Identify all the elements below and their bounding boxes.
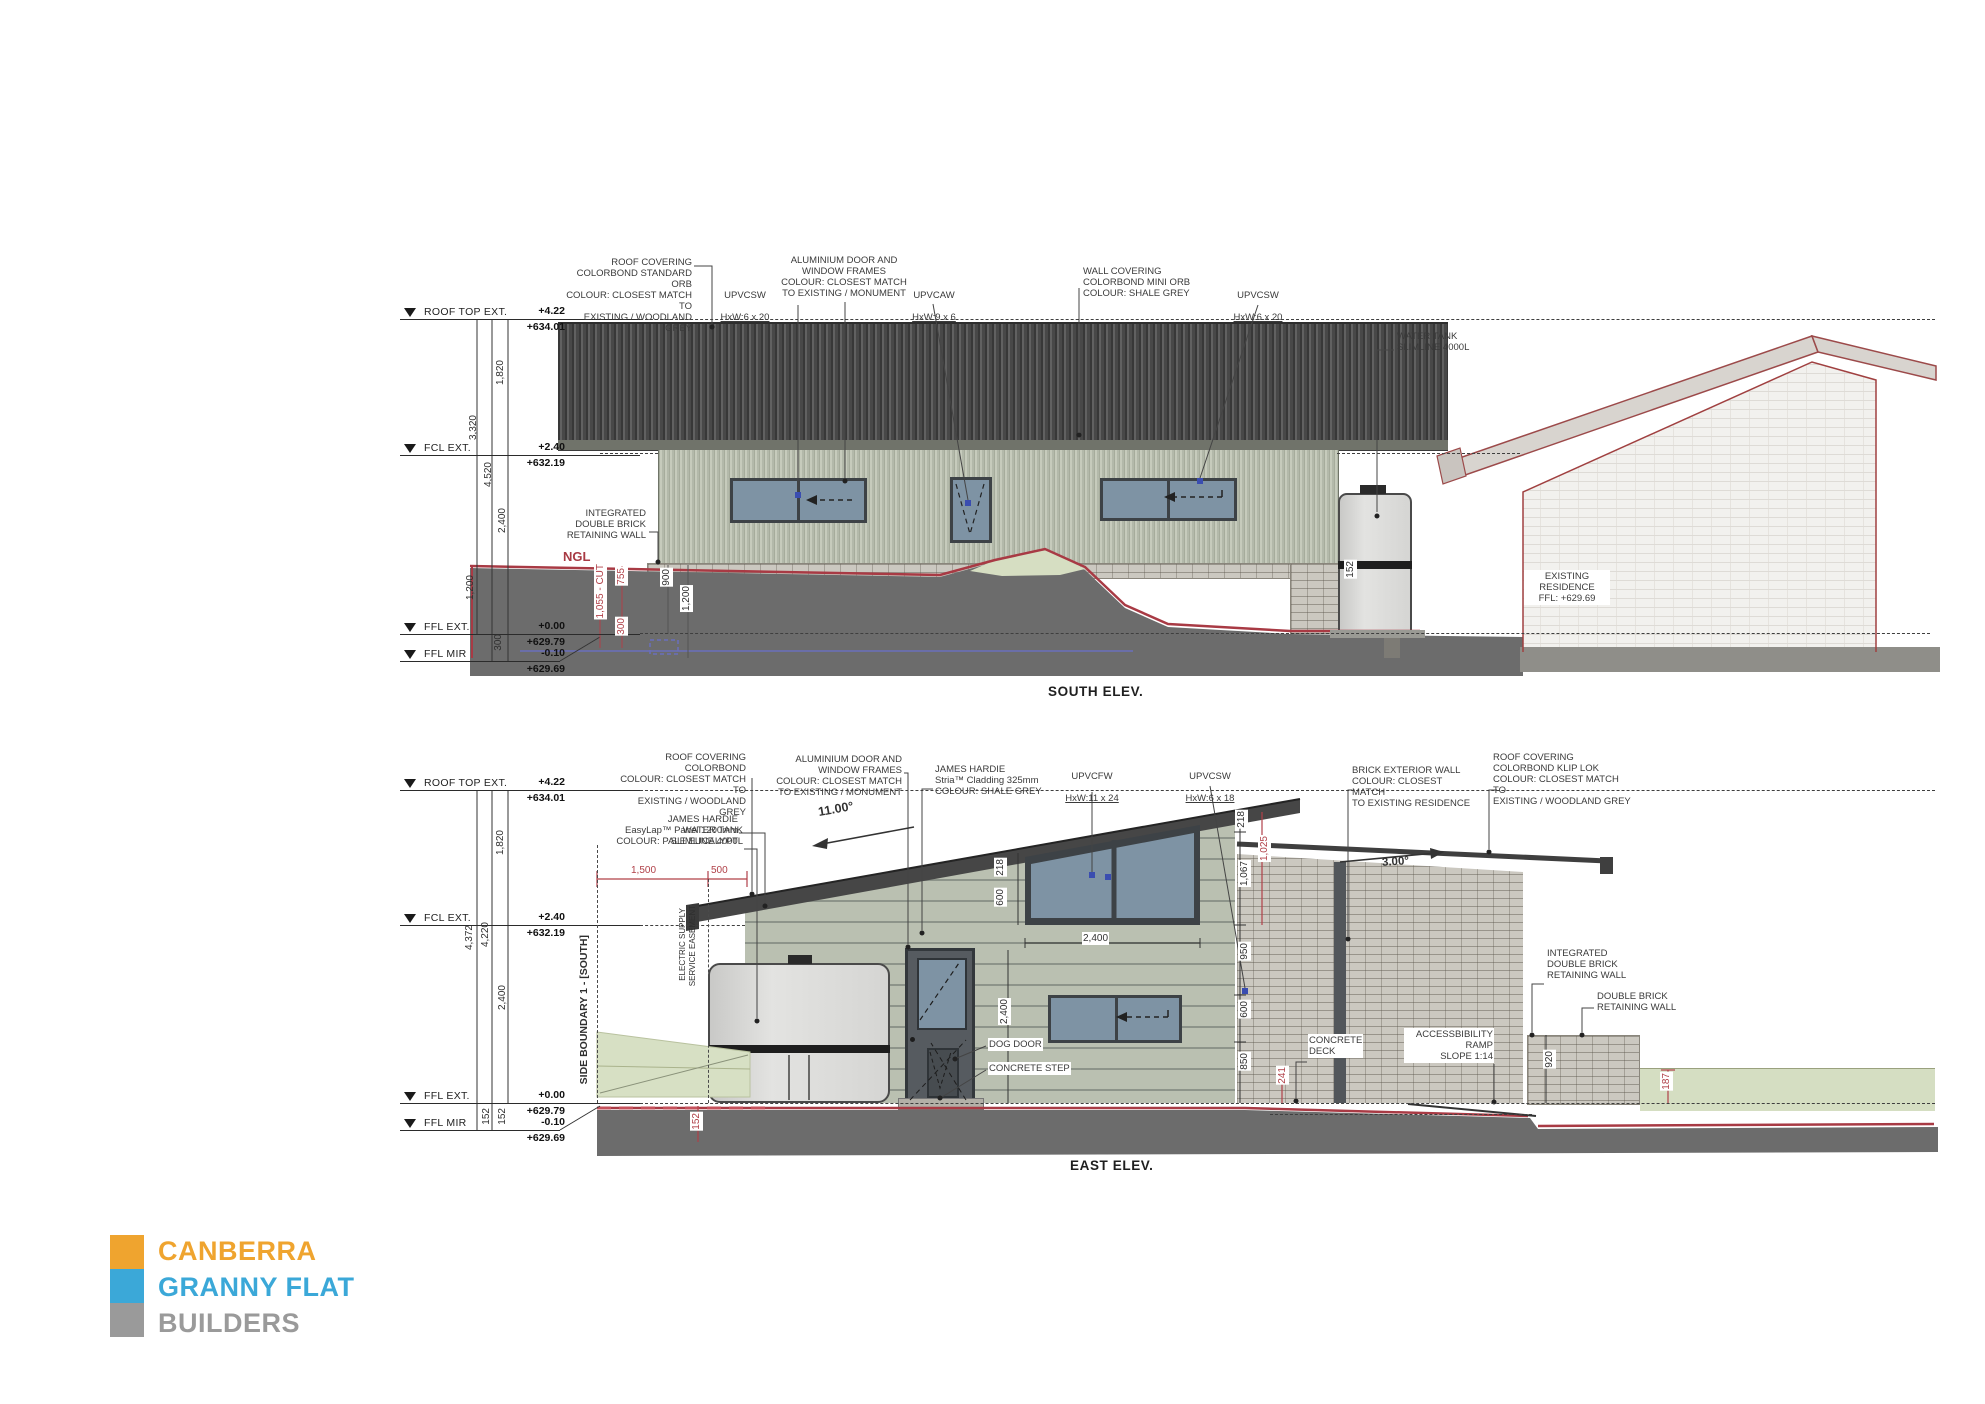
note-brick-wall-e: BRICK EXTERIOR WALL COLOUR: CLOSEST MATC… (1352, 765, 1476, 809)
dim-218-left-e: 218 (994, 858, 1007, 877)
dim-755-s: 755 (615, 567, 628, 586)
datum-label: FFL EXT. (424, 621, 470, 633)
concrete-step-label: CONCRETE STEP (988, 1062, 1071, 1075)
dim-1200b-s: 1,200 (680, 585, 693, 612)
note-klip-lok-e: ROOF COVERING COLORBOND KLIP LOK COLOUR:… (1493, 752, 1633, 807)
concrete-deck-label: CONCRETE DECK (1308, 1034, 1363, 1058)
dim-300b-s: 300 (615, 617, 628, 636)
logo-square-blue (110, 1269, 144, 1303)
architectural-drawing-sheet: ROOF TOP EXT. +4.22 +634.01 FCL EXT. +2.… (0, 0, 1985, 1404)
datum-abs-value: +629.69 (480, 1132, 565, 1144)
dashed-ffl-s (640, 633, 1930, 634)
dashed-fcl-s-left (600, 453, 658, 454)
note-upvcsw2-s: UPVCSW HxW:6 x 20 (1225, 279, 1291, 334)
dim-300-s: 300 (493, 634, 504, 651)
datum-marker (404, 1092, 416, 1101)
logo-square-gray (110, 1303, 144, 1337)
upvc-size: HxW:6 x 20 (1225, 312, 1291, 323)
east-entry-door (905, 948, 975, 1105)
dim-1820-e: 1,820 (495, 830, 506, 855)
datum-line-ffl-s (400, 634, 640, 635)
east-downpipe (1334, 862, 1346, 1103)
dim-1820-s: 1,820 (495, 360, 506, 385)
note-water-tank-s: WATER TANK SLIMLINE 4000L (1397, 331, 1492, 353)
upvc-code: UPVCSW (703, 290, 787, 301)
datum-line-fcl-s (400, 455, 640, 456)
dim-1500-e: 1,500 (630, 864, 657, 877)
window-mullion (797, 481, 800, 520)
dim-4220-e: 4,220 (480, 922, 491, 947)
note-retaining-wall-s: INTEGRATED DOUBLE BRICK RETAINING WALL (556, 508, 646, 541)
datum-line-mir-e (400, 1130, 560, 1131)
dim-152b-e: 152 (497, 1108, 508, 1125)
south-roof-band (558, 322, 1448, 446)
note-alu-frames-s: ALUMINIUM DOOR AND WINDOW FRAMES COLOUR:… (778, 255, 910, 299)
note-stria-e: JAMES HARDIE Stria™ Cladding 325mm COLOU… (935, 764, 1047, 797)
tank-cap (1360, 485, 1386, 494)
dim-4520-s: 4,520 (483, 462, 494, 487)
linework-overlay (0, 0, 1985, 1404)
datum-line-ffl-e (400, 1103, 640, 1104)
side-boundary-label: SIDE BOUNDARY 1 - [SOUTH] (578, 935, 590, 1084)
easement-label-1: ELECTRIC SUPPLY (678, 908, 687, 981)
note-wall-covering-s: WALL COVERING COLORBOND MINI ORB COLOUR:… (1083, 266, 1213, 299)
dim-500-e: 500 (710, 864, 729, 877)
dim-152-s: 152 (1344, 560, 1357, 579)
upvc-size: HxW:11 x 24 (1060, 793, 1124, 804)
side-boundary-line (597, 845, 598, 1103)
dim-241-e: 241 (1276, 1066, 1289, 1085)
dim-152-red-e: 152 (690, 1112, 703, 1131)
existing-residence-label: EXISTING RESIDENCE FFL: +629.69 (1524, 570, 1610, 605)
datum-abs-value: +629.69 (480, 663, 565, 675)
upvc-code: UPVCFW (1060, 771, 1124, 782)
ramp-label: ACCESSBIBILITY RAMP SLOPE 1:14 (1404, 1028, 1494, 1063)
upvc-size: HxW:6 x 20 (703, 312, 787, 323)
east-elevation-title: EAST ELEV. (1070, 1158, 1154, 1173)
dashed-ffl-e (640, 1103, 1935, 1104)
dim-900-s: 900 (660, 568, 673, 587)
south-window-3 (1100, 478, 1237, 521)
ngl-label: NGL (563, 549, 590, 564)
upvc-size: HxW:6 x 18 (1178, 793, 1242, 804)
note-upvcsw-e: UPVCSW HxW:6 x 18 (1178, 760, 1242, 815)
slope-3-label: 3.00° (1382, 855, 1410, 869)
dim-187-e: 187 (1660, 1072, 1673, 1091)
datum-marker (404, 623, 416, 632)
dim-600-right-e: 600 (1238, 1000, 1251, 1019)
south-window-1 (730, 478, 867, 523)
datum-label: FFL MIR (424, 648, 467, 660)
note-easylap-e: JAMES HARDIE EasyLap™ Panel 1200mm COLOU… (598, 814, 738, 847)
datum-marker (404, 1119, 416, 1128)
dim-3320-s: 3,320 (468, 415, 479, 440)
note-roof-covering-e: ROOF COVERING COLORBOND COLOUR: CLOSEST … (610, 752, 746, 818)
datum-abs-value: +632.19 (480, 927, 565, 939)
dashed-deck-e (1270, 1114, 1532, 1115)
datum-marker (404, 914, 416, 923)
east-green-band (1640, 1068, 1935, 1111)
datum-marker (404, 650, 416, 659)
upvc-code: UPVCAW (903, 290, 965, 301)
datum-marker (404, 308, 416, 317)
note-upvcfw-e: UPVCFW HxW:11 x 24 (1060, 760, 1124, 815)
tank-band (708, 1045, 890, 1053)
datum-rel-value: +0.00 (480, 620, 565, 632)
tank-seam (808, 1055, 810, 1100)
dim-2400-e: 2,400 (497, 985, 508, 1010)
door-glass (917, 958, 967, 1030)
datum-line-mir-s (400, 661, 560, 662)
note-upvcaw-s: UPVCAW HxW:9 x 6 (903, 279, 965, 334)
window-mullion (1167, 481, 1170, 518)
dim-door-2400-e: 2,400 (998, 998, 1011, 1025)
dim-w2400-e: 2,400 (1082, 932, 1109, 945)
logo-square-orange (110, 1235, 144, 1269)
easement-label-2: SERVICE EASEMENT (688, 905, 697, 986)
note-upvcsw1-s: UPVCSW HxW:6 x 20 (703, 279, 787, 334)
east-water-tank (708, 963, 890, 1103)
dim-152a-e: 152 (481, 1108, 492, 1125)
dim-600-left-e: 600 (994, 888, 1007, 907)
datum-line-fcl-e (400, 925, 640, 926)
datum-line-rooftop-e (400, 790, 640, 791)
dim-920-e: 920 (1543, 1050, 1556, 1069)
datum-marker (404, 444, 416, 453)
concrete-step (898, 1098, 984, 1110)
datum-label: FFL MIR (424, 1117, 467, 1129)
dim-4372-e: 4,372 (464, 925, 475, 950)
logo-text-canberra: CANBERRA (158, 1238, 317, 1265)
dim-950-e: 950 (1238, 942, 1251, 961)
datum-rel-value: +2.40 (480, 441, 565, 453)
easement-line (708, 879, 709, 1103)
note-alu-frames-e: ALUMINIUM DOOR AND WINDOW FRAMES COLOUR:… (770, 754, 902, 798)
datum-abs-value: +634.01 (480, 792, 565, 804)
dim-1025-e: 1,025 (1258, 835, 1271, 862)
east-window-low (1048, 995, 1182, 1043)
datum-label: FCL EXT. (424, 442, 471, 454)
logo-text-builders: BUILDERS (158, 1310, 300, 1337)
note-retaining-double-e: DOUBLE BRICK RETAINING WALL (1597, 991, 1689, 1013)
datum-abs-value: +634.01 (480, 321, 565, 333)
existing-residence-wall (1521, 355, 1878, 653)
dog-door (927, 1048, 959, 1098)
dim-1067-e: 1,067 (1238, 860, 1251, 887)
slope-11-label: 11.00° (817, 799, 854, 819)
south-brick-base (647, 563, 1339, 579)
dim-cut-s: 1,055 - CUT (594, 563, 607, 619)
note-roof-covering-s: ROOF COVERING COLORBOND STANDARD ORB COL… (556, 257, 692, 334)
datum-rel-value: +0.00 (480, 1089, 565, 1101)
tank-cap (788, 955, 812, 964)
logo-text-granny-flat: GRANNY FLAT (158, 1274, 355, 1301)
datum-label: FCL EXT. (424, 912, 471, 924)
south-elevation-title: SOUTH ELEV. (1048, 684, 1143, 699)
upvc-code: UPVCSW (1225, 290, 1291, 301)
datum-label: FFL EXT. (424, 1090, 470, 1102)
tank-seam (788, 1055, 790, 1100)
dim-1200-s: 1,200 (465, 575, 476, 600)
dashed-fcl-s-right (1337, 453, 1520, 454)
south-brick-pier (1290, 563, 1339, 634)
note-retaining-integrated-e: INTEGRATED DOUBLE BRICK RETAINING WALL (1547, 948, 1639, 981)
dim-850-e: 850 (1238, 1052, 1251, 1071)
datum-rel-value: +2.40 (480, 911, 565, 923)
dim-2400-s: 2,400 (497, 508, 508, 533)
south-window-2 (950, 477, 992, 543)
datum-rel-value: +4.22 (480, 776, 565, 788)
window-mullion (1115, 998, 1118, 1040)
datum-marker (404, 779, 416, 788)
east-retaining-wall (1527, 1035, 1640, 1105)
datum-rel-value: +4.22 (480, 305, 565, 317)
dog-door-label: DOG DOOR (988, 1038, 1043, 1051)
datum-rel-value: -0.10 (480, 1116, 565, 1128)
door-handle (910, 1037, 915, 1042)
upvc-code: UPVCSW (1178, 771, 1242, 782)
upvc-size: HxW:9 x 6 (903, 312, 965, 323)
